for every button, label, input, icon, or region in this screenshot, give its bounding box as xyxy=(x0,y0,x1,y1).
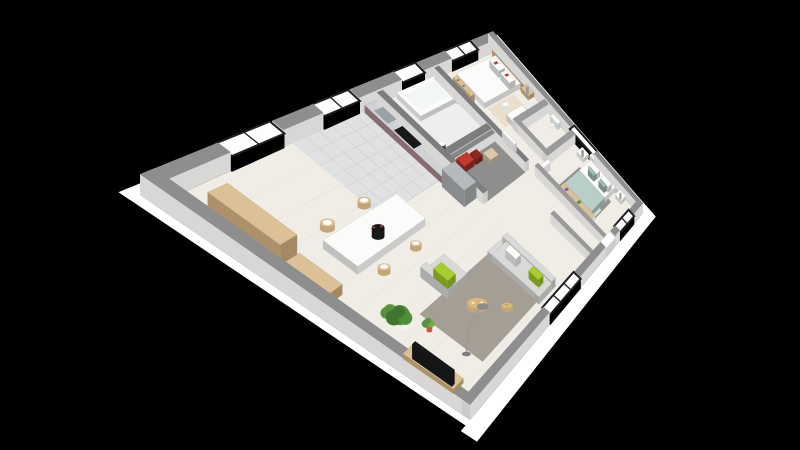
coffee-deco-1 xyxy=(472,302,475,304)
chair-seat-4 xyxy=(412,241,419,245)
book-yellow xyxy=(468,91,471,92)
book-red xyxy=(457,79,460,81)
coffee-deco-3 xyxy=(505,304,507,305)
plate-5 xyxy=(363,217,369,220)
bed2-lamp-north xyxy=(581,150,583,157)
floor-plan-3d-render xyxy=(0,0,800,450)
plate-3 xyxy=(388,207,395,211)
plate-1 xyxy=(345,234,353,238)
floor-plan-stage xyxy=(0,0,800,450)
toilet-bowl xyxy=(550,123,555,129)
chair-seat-2 xyxy=(360,198,368,203)
bed1-chair xyxy=(502,102,510,111)
bed1-lamp xyxy=(526,87,529,95)
bed2-lamp-south xyxy=(619,193,621,200)
chair-seat-3 xyxy=(380,264,388,268)
plate-6 xyxy=(387,236,392,239)
chair-seat-1 xyxy=(323,220,332,225)
coffee-table-small xyxy=(501,302,513,312)
tray-food-1 xyxy=(372,227,375,229)
plate-2 xyxy=(361,247,369,251)
coffee-deco-2 xyxy=(480,302,483,304)
console-vase xyxy=(572,197,574,198)
plate-4 xyxy=(402,219,409,223)
book-blue xyxy=(462,85,465,87)
tray-food-2 xyxy=(380,226,383,228)
